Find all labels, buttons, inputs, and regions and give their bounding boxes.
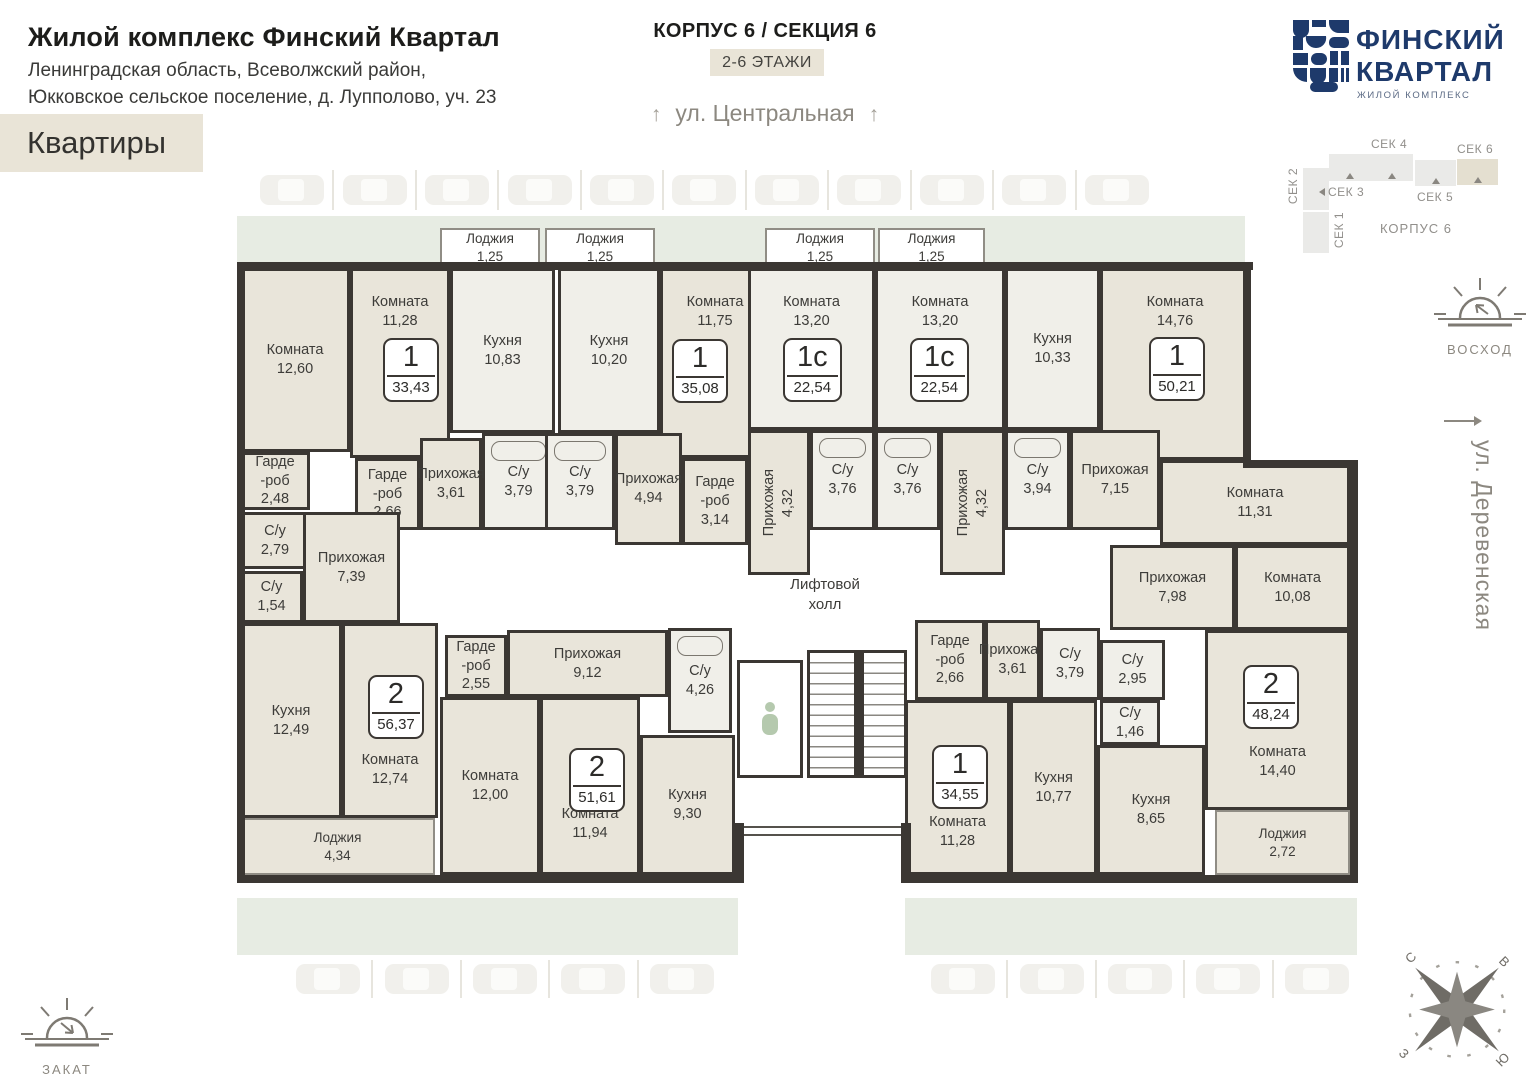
bathtub-icon [554,441,606,461]
room-label: Прихожая7,39 [318,549,385,587]
wall [1243,460,1358,468]
apartment-type: 1с [914,343,965,377]
car-icon [920,175,984,205]
room-area: 10,08 [1274,588,1310,607]
apartment-total-area: 22,54 [921,377,959,396]
room-area: 7,98 [1158,588,1186,607]
room-area: 1,54 [257,597,285,616]
room: С/у2,79 [240,512,310,569]
apartment-badge[interactable]: 150,21 [1149,337,1205,401]
car-icon [425,175,489,205]
room-label: Кухня10,77 [1034,769,1073,807]
apartment-badge[interactable]: 251,61 [569,748,625,812]
apartment-type: 2 [573,753,621,787]
parking-row-top [252,170,1157,210]
room-area: 8,65 [1137,810,1165,829]
section-marker-icon [1432,178,1440,184]
parking-slot [664,170,746,210]
room-label: Лоджия2,72 [1259,825,1307,860]
room: Кухня10,33 [1005,268,1100,430]
parking-slot [1185,960,1273,998]
apartment-total-area: 33,43 [392,377,430,396]
room-area: 3,76 [893,480,921,499]
room-area: 13,20 [922,312,958,331]
wall [237,262,245,883]
room-label: Комната14,76 [1147,293,1204,331]
parking-slot [829,170,911,210]
room-area: 11,28 [940,832,975,851]
street-label-top: ↑ул. Центральная↑ [560,100,970,127]
car-icon [1020,964,1084,994]
parking-slot [1097,960,1185,998]
room-area: 1,46 [1116,723,1144,742]
room-label: Гарде-роб3,14 [695,473,734,530]
parking-slot [462,960,550,998]
parking-row-bottom-right [920,960,1360,998]
room: С/у2,95 [1100,640,1165,700]
room-label: Комната11,75 [687,293,744,331]
room-area: 12,49 [273,721,309,740]
sunrise-block: ВОСХОД [1425,272,1528,357]
room-label: С/у2,95 [1118,651,1146,689]
apartment-type: 2 [372,680,420,714]
compass-rose: С В З Ю [1392,942,1522,1077]
room: Прихожая9,12 [507,630,668,697]
parking-slot [550,960,638,998]
car-icon [1085,175,1149,205]
room-area: 12,74 [372,770,408,789]
loggia: Лоджия2,72 [1215,810,1350,875]
floors-badge: 2-6 ЭТАЖИ [710,49,824,76]
room-area: 12,00 [472,786,508,805]
room-label: Прихожая4,32 [954,469,992,536]
car-icon [755,175,819,205]
room-label: С/у3,76 [828,461,856,499]
room-label: Кухня10,20 [590,332,629,370]
room: Прихожая7,39 [303,512,400,623]
car-icon [1002,175,1066,205]
room-label: Комната13,20 [912,293,969,331]
room-label: С/у3,79 [566,463,594,501]
room-area: 3,79 [566,482,594,501]
bathtub-icon [819,438,866,458]
room-label: Прихожая7,15 [1081,461,1148,499]
car-icon [296,964,360,994]
street-label-right: ул. Деревенская [1470,440,1497,690]
section-marker-icon [1346,173,1354,179]
room: Кухня10,83 [450,268,555,433]
lift-hall-label: Лифтовойхолл [770,575,880,616]
car-icon [1196,964,1260,994]
room: Гарде-роб2,55 [445,635,507,697]
apartment-total-area: 48,24 [1252,704,1290,723]
room-area: 2,55 [462,675,490,694]
room: С/у1,46 [1100,700,1160,745]
room: Гарде-роб2,48 [240,452,310,510]
room-label: Лоджия1,25 [576,230,624,265]
parking-slot [920,960,1008,998]
room: С/у3,79 [545,433,615,530]
room: С/у3,94 [1005,430,1070,530]
room-label: Прихожая3,61 [979,641,1046,679]
parking-slot [747,170,829,210]
room-area: 4,32 [973,488,992,516]
room-area: 3,61 [437,484,465,503]
room: Кухня10,20 [558,268,660,433]
entrance-canopy [744,826,901,836]
car-icon [385,964,449,994]
room-label: Комната12,60 [267,341,324,379]
room-area: 3,79 [504,482,532,501]
apartment-badge[interactable]: 1с22,54 [783,338,842,402]
minimap-section-label: СЕК 5 [1417,190,1453,204]
east-arrow-icon [1444,414,1482,428]
room-label: С/у3,94 [1023,461,1051,499]
person-icon [758,701,782,737]
stairs [807,650,907,778]
room-label: Кухня10,83 [483,332,522,370]
room-label: Прихожая9,12 [554,645,621,683]
room: С/у3,76 [875,430,940,530]
apartment-type: 2 [1247,670,1295,704]
room: Прихожая7,98 [1110,545,1235,630]
room-area: 11,28 [382,312,417,331]
sunset-icon [19,992,115,1054]
section-marker-icon [1388,173,1396,179]
room: Комната12,60 [240,268,350,452]
apartment-badge[interactable]: 256,37 [368,675,424,739]
car-icon [561,964,625,994]
car-icon [1108,964,1172,994]
room-label: Гарде-роб2,48 [255,453,294,510]
brand-name-line2[interactable]: КВАРТАЛ [1356,56,1493,88]
apartment-badge[interactable]: 134,55 [932,745,988,809]
apartment-badge[interactable]: 248,24 [1243,665,1299,729]
room-label: Комната12,00 [462,767,519,805]
parking-slot [994,170,1076,210]
room: Прихожая3,61 [420,438,482,530]
car-icon [473,964,537,994]
wall [1243,262,1251,468]
car-icon [590,175,654,205]
minimap-corpus-label: КОРПУС 6 [1380,221,1452,236]
apartment-total-area: 51,61 [578,787,616,806]
room-area: 4,32 [779,488,798,516]
parking-slot [373,960,461,998]
room-area: 10,83 [484,351,520,370]
address-line-2: Юкковское сельское поселение, д. Лупполо… [28,87,496,109]
room-area: 10,77 [1035,788,1071,807]
room-area: 3,94 [1023,480,1051,499]
minimap-section-label: СЕК 2 [1286,168,1300,204]
room-area: 2,72 [1269,843,1295,861]
wall [1350,460,1358,883]
room-label: С/у1,54 [257,578,285,616]
wall [237,875,742,883]
room-area: 4,26 [686,681,714,700]
room-label: С/у4,26 [686,662,714,700]
room-area: 9,30 [673,805,701,824]
loggia: Лоджия4,34 [240,818,435,875]
room-area: 11,31 [1237,503,1272,522]
room-area: 7,15 [1101,480,1129,499]
bathtub-icon [491,441,546,461]
apartment-type: 1с [787,343,838,377]
minimap-section-label: СЕК 6 [1457,142,1493,156]
apartment-type: 1 [387,343,435,377]
car-icon [837,175,901,205]
parking-slot [252,170,334,210]
sunset-label: ЗАКАТ [12,1062,122,1077]
room-label: Лоджия1,25 [796,230,844,265]
room-label: Лоджия1,25 [908,230,956,265]
room-area: 14,76 [1157,312,1193,331]
room-area: 11,75 [697,312,732,331]
apartment-total-area: 50,21 [1158,376,1196,395]
sunset-block: ЗАКАТ [12,992,122,1077]
flats-badge-label: Квартиры [27,125,166,161]
room-area: 4,34 [324,847,350,865]
room: Гарде-роб2,66 [915,620,985,700]
parking-slot [1008,960,1096,998]
room-area: 3,76 [828,480,856,499]
room-label: Прихожая3,61 [417,465,484,503]
room: Прихожая4,32 [748,430,810,575]
room-label: Прихожая4,94 [615,470,682,508]
room-area: 9,12 [573,664,601,683]
room-label: Комната11,28 [929,813,986,851]
bathtub-icon [677,636,723,656]
room-label: Комната14,40 [1249,743,1306,781]
room-label: С/у3,76 [893,461,921,499]
room: Комната12,00 [440,697,540,875]
apartment-badge[interactable]: 133,43 [383,338,439,402]
apartment-type: 1 [1153,342,1201,376]
room: Комната11,31 [1160,460,1350,545]
room: Кухня9,30 [640,735,735,875]
apartment-total-area: 56,37 [377,714,415,733]
room-label: Гарде-роб2,66 [930,632,969,689]
room-area: 14,40 [1259,762,1295,781]
apartment-badge[interactable]: 1с22,54 [910,338,969,402]
parking-slot [499,170,581,210]
parking-slot [582,170,664,210]
parking-slot [1077,170,1157,210]
room: Гарде-роб3,14 [682,458,748,545]
room-area: 13,20 [793,312,829,331]
room-label: Комната13,20 [783,293,840,331]
room: С/у1,54 [240,571,303,623]
room-label: Прихожая7,98 [1139,569,1206,607]
minimap-section-label: СЕК 4 [1371,137,1407,151]
car-icon [672,175,736,205]
room-label: Комната10,08 [1264,569,1321,607]
brand-logo-icon[interactable] [1293,20,1349,96]
car-icon [260,175,324,205]
room-label: Кухня12,49 [272,702,311,740]
room: Прихожая3,61 [985,620,1040,700]
wall [237,262,1253,270]
room-area: 10,20 [591,351,627,370]
room-area: 10,33 [1034,349,1070,368]
section-marker-icon [1319,188,1325,196]
room-label: С/у2,79 [261,522,289,560]
room: С/у4,26 [668,628,732,733]
room-label: Кухня9,30 [668,786,707,824]
corpus-section-title: КОРПУС 6 / СЕКЦИЯ 6 [560,20,970,43]
apartment-total-area: 35,08 [681,378,719,397]
room: С/у3,79 [1040,628,1100,700]
room: С/у3,76 [810,430,875,530]
parking-slot [417,170,499,210]
car-icon [343,175,407,205]
sunrise-icon [1432,272,1528,334]
north-arrow-icon: ↑ [855,103,894,126]
wall [901,823,911,883]
room: Кухня8,65 [1097,745,1205,875]
room-label: Комната11,31 [1227,484,1284,522]
car-icon [1285,964,1349,994]
parking-row-bottom-left [285,960,725,998]
room: Комната10,08 [1235,545,1350,630]
room-label: Комната11,28 [372,293,429,331]
apartment-total-area: 34,55 [941,784,979,803]
bathtub-icon [1014,438,1061,458]
apartment-badge[interactable]: 135,08 [672,339,728,403]
lawn-strip-bottom-right [905,898,1357,955]
elevator [737,660,803,778]
room-area: 2,95 [1118,670,1146,689]
apartment-type: 1 [676,344,724,378]
minimap-section-label: СЕК 3 [1319,185,1364,199]
bathtub-icon [884,438,931,458]
room-area: 3,61 [998,660,1026,679]
room-label: Лоджия4,34 [314,829,362,864]
parking-slot [285,960,373,998]
room-label: С/у3,79 [1056,645,1084,683]
car-icon [931,964,995,994]
room-area: 3,79 [1056,664,1084,683]
room: Прихожая7,15 [1070,430,1160,530]
address-line-1: Ленинградская область, Всеволжский район… [28,60,426,82]
room-area: 2,48 [261,490,289,509]
apartment-total-area: 22,54 [794,377,832,396]
north-arrow-icon: ↑ [637,103,676,126]
wall [734,823,744,883]
parking-slot [639,960,725,998]
apartment-type: 1 [936,750,984,784]
room: Прихожая4,32 [940,430,1005,575]
room-area: 12,60 [277,360,313,379]
car-icon [650,964,714,994]
room-label: С/у1,46 [1116,704,1144,742]
room-area: 11,94 [572,824,607,843]
room-label: Лоджия1,25 [466,230,514,265]
car-icon [508,175,572,205]
wall [907,875,1358,883]
parking-slot [912,170,994,210]
floor-plan: Лифтовойхолл Комната12,60Комната11,28Кух… [237,225,1367,895]
flats-badge[interactable]: Квартиры [0,114,203,172]
room-label: Комната12,74 [362,751,419,789]
lawn-strip-bottom-left [237,898,738,955]
room-area: 7,39 [337,568,365,587]
room: Кухня12,49 [240,623,342,818]
room-label: Прихожая4,32 [760,469,798,536]
page-title: Жилой комплекс Финский Квартал [28,22,500,53]
room: Прихожая4,94 [615,433,682,545]
room-area: 3,14 [701,511,729,530]
brand-name-line1[interactable]: ФИНСКИЙ [1356,24,1505,56]
parking-slot [334,170,416,210]
room-area: 2,66 [936,669,964,688]
room-area: 2,79 [261,541,289,560]
room-label: Гарде-роб2,55 [456,638,495,695]
brand-subtitle: ЖИЛОЙ КОМПЛЕКС [1357,90,1471,101]
section-marker-icon [1474,177,1482,183]
sunrise-label: ВОСХОД [1425,342,1528,357]
room-label: С/у3,79 [504,463,532,501]
parking-slot [1274,960,1360,998]
room-label: Кухня8,65 [1132,791,1171,829]
room-area: 4,94 [634,489,662,508]
room: Кухня10,77 [1010,700,1097,875]
room-label: Кухня10,33 [1033,330,1072,368]
